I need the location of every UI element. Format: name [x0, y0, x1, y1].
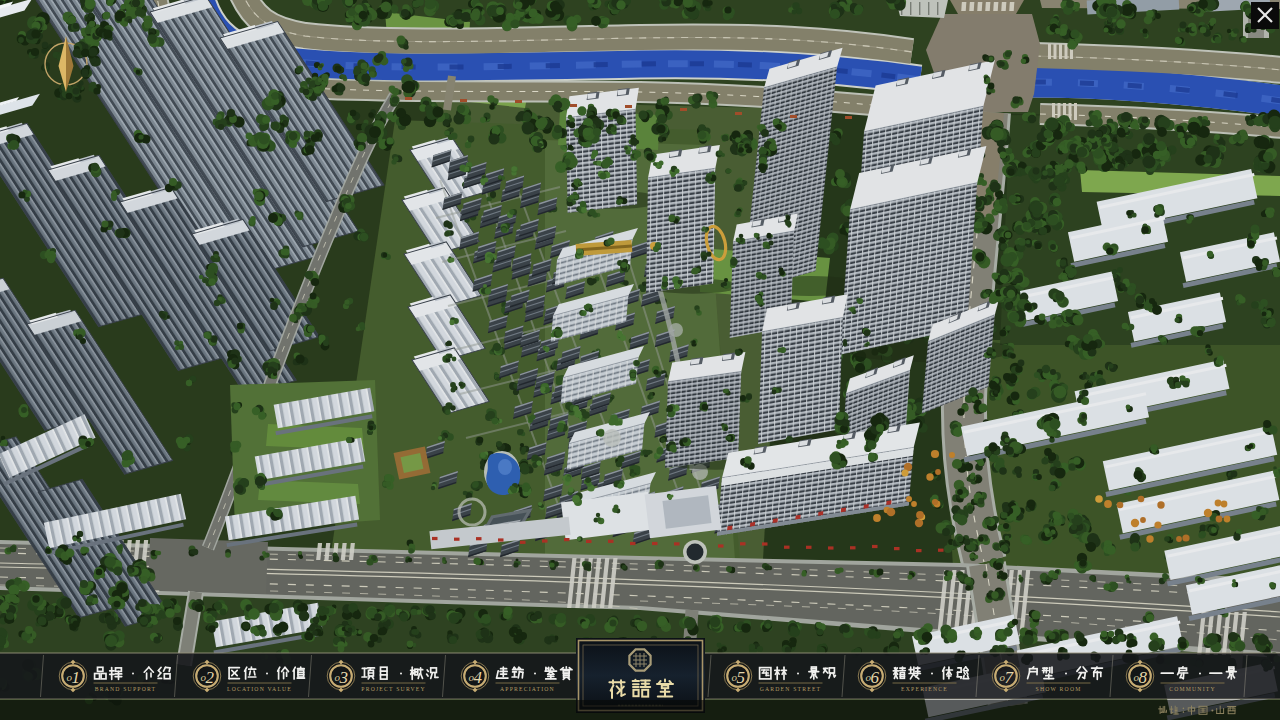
svg-text:4: 4	[474, 668, 483, 687]
svg-text:1: 1	[72, 668, 81, 687]
svg-text:APPRECIATION: APPRECIATION	[500, 686, 555, 692]
svg-text:8: 8	[1139, 668, 1148, 687]
svg-text:EXPERIENCE: EXPERIENCE	[901, 686, 948, 692]
svg-text:SHOW ROOM: SHOW ROOM	[1036, 686, 1082, 692]
svg-text:2: 2	[206, 668, 215, 687]
svg-text:GARDEN STREET: GARDEN STREET	[760, 686, 822, 692]
svg-text:BRAND SUPPORT: BRAND SUPPORT	[95, 686, 157, 692]
svg-text:3: 3	[339, 668, 349, 687]
svg-text:COMMUNITY: COMMUNITY	[1169, 686, 1216, 692]
svg-text:LOCATION VALUE: LOCATION VALUE	[227, 686, 292, 692]
svg-text:PROJECT SURVEY: PROJECT SURVEY	[361, 686, 425, 692]
svg-text:6: 6	[871, 668, 880, 687]
svg-text:5: 5	[737, 668, 746, 687]
